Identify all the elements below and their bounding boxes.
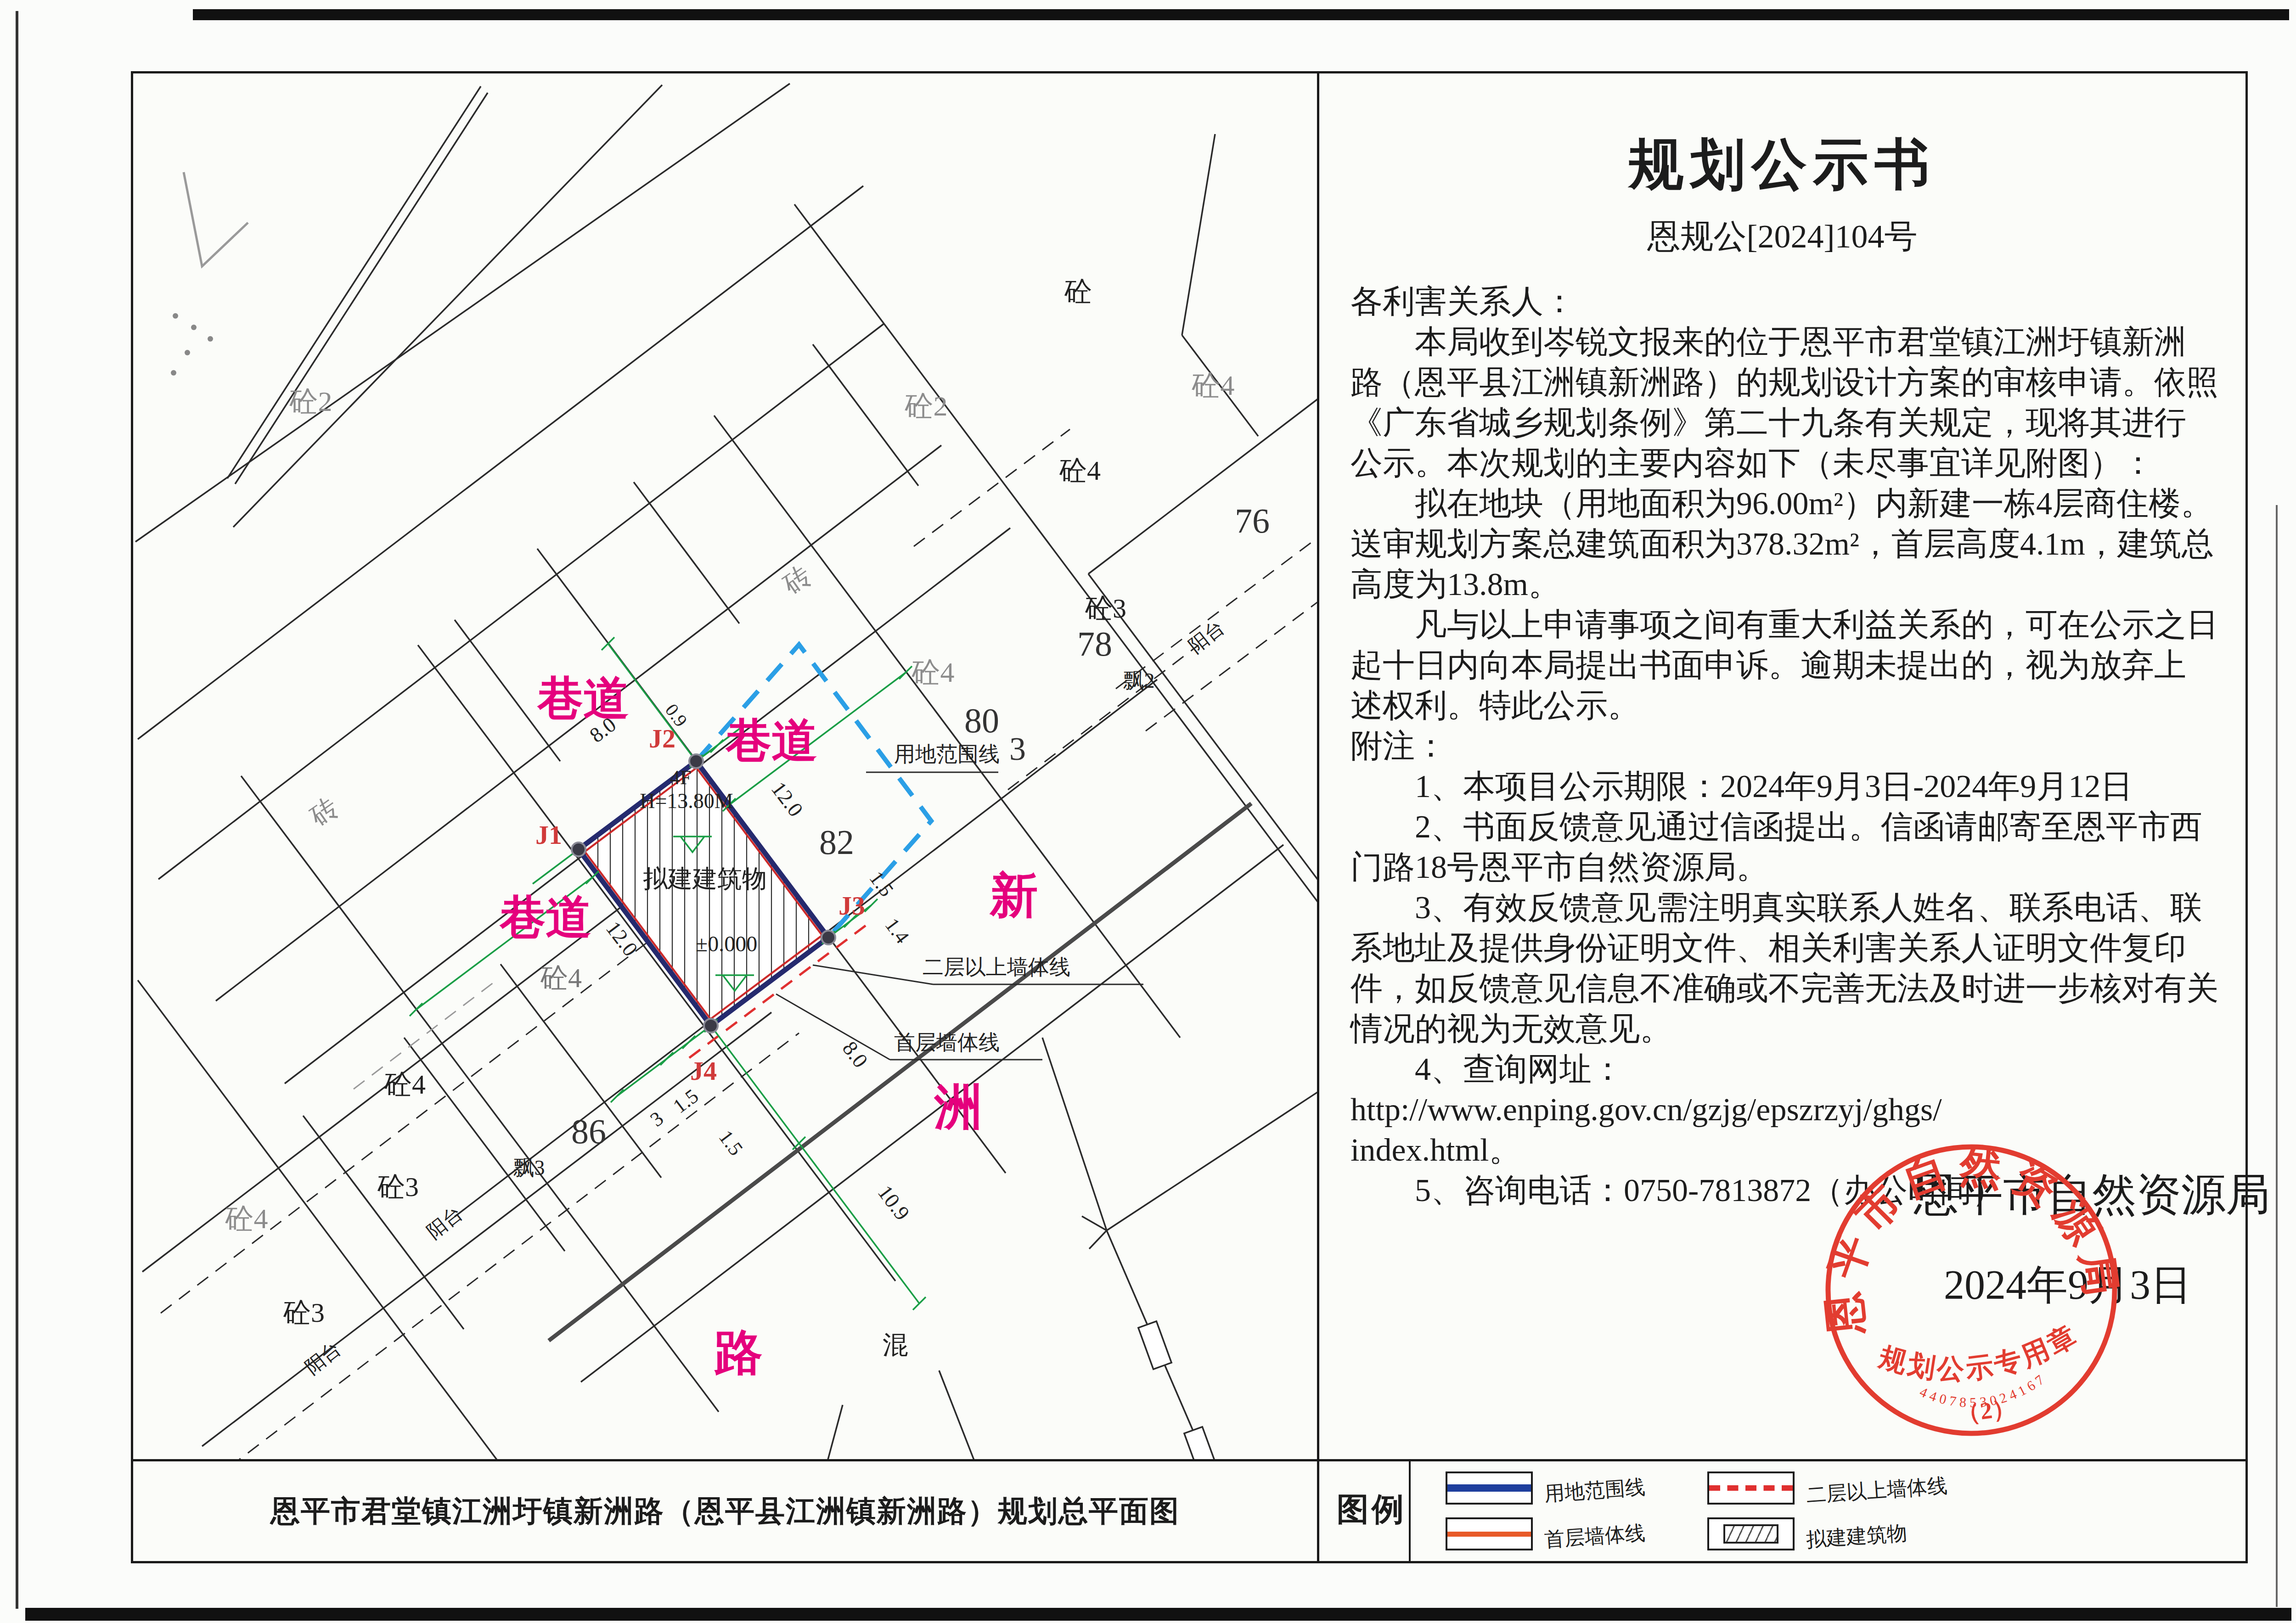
notice-line: 2、书面反馈意见通过信函提出。信函请邮寄至恩平市西 xyxy=(1351,807,2245,847)
legend-swatch-lg-orange xyxy=(1446,1517,1533,1550)
site-plan-svg: 巷道巷道巷道新洲路J1J2J3J44FH=13.80M拟建建筑物±0.00082… xyxy=(133,73,1318,1460)
notice-line: 《广东省城乡规划条例》第二十九条有关规定，现将其进行 xyxy=(1351,403,2245,443)
plan-label: 80 xyxy=(964,701,999,740)
plan-label: 砼4 xyxy=(912,657,955,688)
plan-label: 砼4 xyxy=(384,1069,426,1100)
notice-line: 路（恩平县江洲镇新洲路）的规划设计方案的审核申请。依照 xyxy=(1351,362,2245,403)
plan-label: 砼2 xyxy=(905,390,948,421)
notice-line: 门路18号恩平市自然资源局。 xyxy=(1351,847,2245,887)
plan-label: 混 xyxy=(883,1331,908,1359)
notice-line: 系地址及提供身份证明文件、相关利害关系人证明文件复印 xyxy=(1351,928,2245,968)
notice-line: 4、查询网址： xyxy=(1351,1049,2245,1089)
plan-label: 飘2 xyxy=(1123,669,1155,692)
plan-label: 砼3 xyxy=(377,1172,419,1202)
legend-label: 首层墙体线 xyxy=(1543,1519,1646,1553)
scan-edge-bottom xyxy=(25,1608,2291,1621)
notice-line: 附注： xyxy=(1351,726,2245,766)
plan-label: 82 xyxy=(819,823,854,861)
plan-label: 用地范围线 xyxy=(894,742,1000,766)
site-plan: 巷道巷道巷道新洲路J1J2J3J44FH=13.80M拟建建筑物±0.00082… xyxy=(133,73,1318,1460)
plan-label: H=13.80M xyxy=(640,789,733,813)
plan-label: 洲 xyxy=(934,1080,983,1134)
plan-label: 阳台 xyxy=(301,1338,345,1378)
scan-edge-top xyxy=(193,9,2289,20)
plan-label: 砖 xyxy=(304,792,344,832)
plan-label: ±0.000 xyxy=(696,932,757,956)
legend-swatch-lg-reddash xyxy=(1707,1471,1795,1505)
plan-label: 76 xyxy=(1235,501,1270,540)
scanned-planning-notice: { "notice": { "title": "规划公示书", "doc_no"… xyxy=(0,0,2296,1623)
plan-label: J1 xyxy=(535,820,562,850)
plan-label: 砼2 xyxy=(289,386,332,417)
legend-label: 用地范围线 xyxy=(1543,1473,1646,1507)
legend-label: 二层以上墙体线 xyxy=(1805,1472,1948,1509)
scan-edge-right xyxy=(2276,505,2278,1607)
plan-label: 砼 xyxy=(1064,276,1092,307)
plan-label: 4F xyxy=(670,766,691,789)
seal-ring-text: 恩平市自然资源局 xyxy=(1802,1125,2126,1339)
notice-line: 1、本项目公示期限：2024年9月3日-2024年9月12日 xyxy=(1351,766,2245,807)
plan-label: 3 xyxy=(646,1107,668,1131)
legend-label: 拟建建筑物 xyxy=(1805,1519,1908,1553)
plan-label: 飘3 xyxy=(513,1156,545,1179)
legend-band: 图例 用地范围线二层以上墙体线首层墙体线拟建建筑物 xyxy=(1319,1461,2245,1561)
plan-label: 砼4 xyxy=(225,1203,268,1234)
doc-number: 恩规公[2024]104号 xyxy=(1319,214,2245,258)
plan-label: 1.5 xyxy=(714,1126,747,1160)
official-seal: 恩平市自然资源局 规划公示专用章 （2） 4407853024167 xyxy=(1792,1106,2151,1474)
notice-panel: 规划公示书 恩规公[2024]104号 各利害关系人：本局收到岑锐文报来的位于恩… xyxy=(1319,73,2245,1459)
plan-label: 阳台 xyxy=(423,1202,467,1243)
scan-edge-left xyxy=(16,11,18,1609)
plan-label: 12.0 xyxy=(767,777,808,821)
legend-title: 图例 xyxy=(1337,1488,1407,1531)
legend-swatch-lg-hatch xyxy=(1707,1517,1795,1550)
notice-line: 情况的视为无效意见。 xyxy=(1351,1009,2245,1049)
notice-line: 述权利。特此公示。 xyxy=(1351,685,2245,726)
plan-label: 砼4 xyxy=(1059,455,1101,486)
plan-label: 78 xyxy=(1077,624,1112,663)
plan-label: J4 xyxy=(690,1056,717,1086)
notice-line: 起十日内向本局提出书面申诉。逾期未提出的，视为放弃上 xyxy=(1351,645,2245,685)
document-frame: 巷道巷道巷道新洲路J1J2J3J44FH=13.80M拟建建筑物±0.00082… xyxy=(131,71,2248,1563)
plan-label: J3 xyxy=(838,891,865,921)
scan-marks xyxy=(171,172,248,376)
plan-label: 巷道 xyxy=(537,673,629,724)
plan-label: 二层以上墙体线 xyxy=(923,955,1070,979)
plan-label: 86 xyxy=(571,1112,606,1151)
plan-label: 1.5 xyxy=(669,1084,703,1118)
seal-center-text: 规划公示专用章 xyxy=(1872,1317,2087,1396)
plan-label: 路 xyxy=(714,1326,763,1380)
notice-line: 本局收到岑锐文报来的位于恩平市君堂镇江洲圩镇新洲 xyxy=(1351,322,2245,362)
plan-label: J2 xyxy=(649,724,675,753)
notice-line: 凡与以上申请事项之间有重大利益关系的，可在公示之日 xyxy=(1351,605,2245,645)
plan-label: 巷道 xyxy=(725,715,817,766)
plan-caption: 恩平市君堂镇江洲圩镇新洲路（恩平县江洲镇新洲路）规划总平面图 xyxy=(270,1491,1180,1531)
plan-label: 8.0 xyxy=(838,1037,872,1072)
legend-swatch-lg-blue xyxy=(1446,1471,1533,1505)
notice-line: 送审规划方案总建筑面积为378.32m²，首层高度4.1m，建筑总 xyxy=(1351,524,2245,564)
notice-line: 高度为13.8m。 xyxy=(1351,564,2245,605)
legend-divider xyxy=(1409,1461,1411,1561)
plan-label: 1.5 xyxy=(865,867,898,901)
page-title: 规划公示书 xyxy=(1319,128,2245,202)
notice-line: 件，如反馈意见信息不准确或不完善无法及时进一步核对有关 xyxy=(1351,968,2245,1009)
plan-label: 首层墙体线 xyxy=(894,1031,1000,1054)
plan-label: 10.9 xyxy=(873,1181,914,1224)
notice-line: 拟在地块（用地面积为96.00m²）内新建一栋4层商住楼。 xyxy=(1351,483,2245,524)
notice-line: 3、有效反馈意见需注明真实联系人姓名、联系电话、联 xyxy=(1351,887,2245,928)
parcel-lines xyxy=(135,84,1318,1460)
plan-label: 拟建建筑物 xyxy=(643,865,767,893)
plan-label: 砼3 xyxy=(1085,593,1126,623)
notice-line: 公示。本次规划的主要内容如下（未尽事宜详见附图）： xyxy=(1351,443,2245,483)
plan-label: 巷道 xyxy=(499,892,591,943)
plan-label: 砼4 xyxy=(540,963,582,993)
plan-label: 砼4 xyxy=(1192,370,1235,401)
plan-label: 1.4 xyxy=(880,914,913,948)
notice-line: 各利害关系人： xyxy=(1351,281,2245,322)
notice-body: 各利害关系人：本局收到岑锐文报来的位于恩平市君堂镇江洲圩镇新洲路（恩平县江洲镇新… xyxy=(1319,281,2245,1211)
plan-label: 砼3 xyxy=(283,1297,325,1328)
plan-label: 3 xyxy=(1009,730,1026,767)
plan-label: 新 xyxy=(989,869,1038,922)
caption-band: 恩平市君堂镇江洲圩镇新洲路（恩平县江洲镇新洲路）规划总平面图 xyxy=(133,1461,1317,1561)
